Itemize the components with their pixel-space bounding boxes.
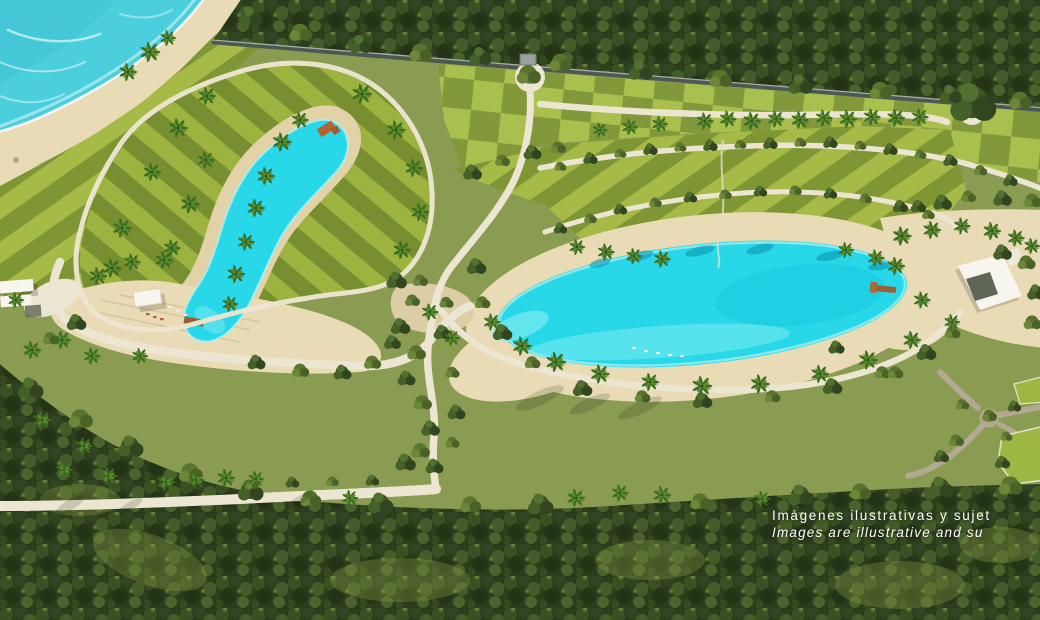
entry-gate	[520, 54, 536, 65]
disclaimer-line-en: Images are illustrative and su	[772, 524, 991, 541]
disclaimer-line-es: Imágenes ilustrativas y sujet	[772, 507, 991, 524]
masterplan-render: Imágenes ilustrativas y sujet Images are…	[0, 0, 1040, 620]
disclaimer: Imágenes ilustrativas y sujet Images are…	[772, 507, 991, 541]
